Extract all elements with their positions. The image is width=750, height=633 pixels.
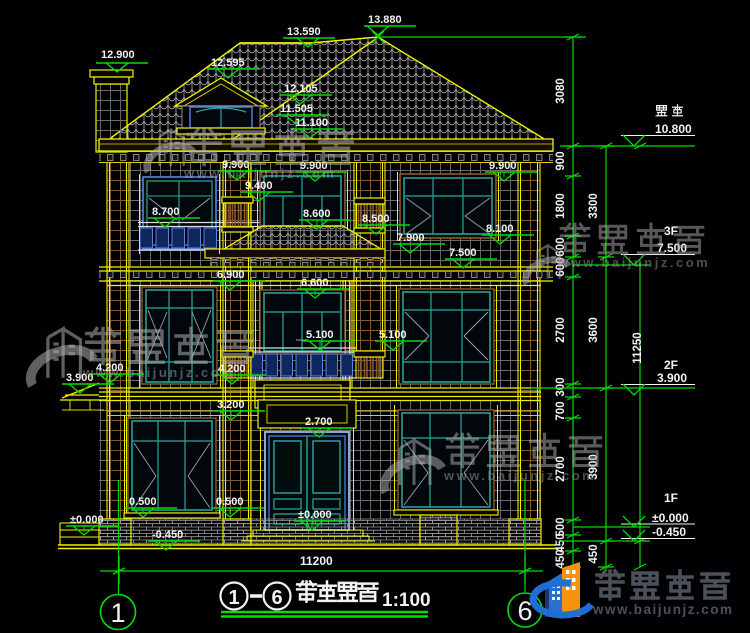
svg-text:-0.450: -0.450 — [652, 525, 686, 539]
svg-text:3080: 3080 — [555, 78, 567, 104]
svg-text:-0.450: -0.450 — [152, 529, 183, 541]
svg-text:3.900: 3.900 — [657, 371, 687, 385]
svg-text:9.900: 9.900 — [489, 160, 517, 172]
svg-text:8.600: 8.600 — [303, 208, 331, 220]
svg-text:5.100: 5.100 — [306, 329, 334, 341]
svg-text:www.baijunjz.com: www.baijunjz.com — [183, 166, 336, 181]
svg-text:11.505: 11.505 — [280, 103, 313, 115]
svg-text:1F: 1F — [664, 491, 678, 505]
svg-text:7.900: 7.900 — [397, 232, 425, 244]
svg-text:www.baijunjz.com: www.baijunjz.com — [592, 602, 734, 617]
svg-text:1: 1 — [228, 587, 239, 609]
svg-text:6.900: 6.900 — [217, 269, 245, 281]
svg-text:3.200: 3.200 — [217, 399, 245, 411]
svg-text:300: 300 — [555, 377, 567, 396]
svg-text:11250: 11250 — [632, 332, 644, 363]
svg-text:6.600: 6.600 — [301, 277, 329, 289]
svg-text:2700: 2700 — [555, 317, 567, 343]
svg-text:12.595: 12.595 — [211, 57, 245, 69]
svg-text:3600: 3600 — [588, 317, 600, 343]
svg-text:700: 700 — [555, 401, 567, 420]
svg-text:10.800: 10.800 — [655, 122, 692, 136]
svg-text:0.500: 0.500 — [216, 496, 244, 508]
svg-text:www.baijunjz.com: www.baijunjz.com — [557, 255, 710, 270]
svg-text:12.105: 12.105 — [284, 83, 318, 95]
svg-text:±0.000: ±0.000 — [652, 511, 689, 525]
svg-text:1800: 1800 — [555, 193, 567, 219]
svg-text:8.100: 8.100 — [486, 223, 514, 235]
svg-text:2.700: 2.700 — [305, 416, 333, 428]
svg-text:450: 450 — [588, 544, 600, 563]
svg-text:3300: 3300 — [588, 193, 600, 219]
svg-text:1: 1 — [110, 598, 125, 628]
svg-text:12.900: 12.900 — [101, 49, 135, 61]
svg-text:8.700: 8.700 — [152, 206, 180, 218]
svg-text:13.590: 13.590 — [287, 26, 321, 38]
svg-text:11.100: 11.100 — [295, 117, 328, 129]
svg-text:1:100: 1:100 — [382, 590, 431, 611]
svg-text:www.baijunjz.com: www.baijunjz.com — [82, 365, 235, 380]
svg-text:2F: 2F — [664, 358, 678, 372]
svg-text:www.baijunjz.com: www.baijunjz.com — [443, 468, 596, 483]
svg-text:900: 900 — [555, 151, 567, 170]
svg-text:0.500: 0.500 — [129, 496, 157, 508]
svg-text:9.400: 9.400 — [245, 180, 273, 192]
svg-text:7.500: 7.500 — [449, 247, 477, 259]
svg-text:8.500: 8.500 — [362, 213, 390, 225]
svg-text:13.880: 13.880 — [368, 14, 402, 26]
svg-text:±0.000: ±0.000 — [70, 514, 104, 526]
svg-text:11200: 11200 — [300, 554, 333, 568]
svg-text:±0.000: ±0.000 — [298, 509, 332, 521]
svg-text:450: 450 — [555, 549, 567, 568]
svg-text:6: 6 — [271, 587, 282, 609]
svg-text:5.100: 5.100 — [379, 329, 407, 341]
